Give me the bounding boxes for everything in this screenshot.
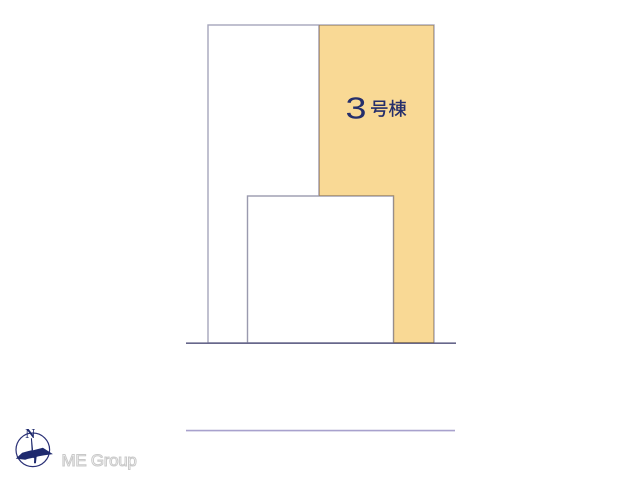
svg-text:ME Group: ME Group [62, 451, 137, 470]
svg-text:3: 3 [346, 91, 367, 126]
svg-text:N: N [25, 426, 35, 441]
